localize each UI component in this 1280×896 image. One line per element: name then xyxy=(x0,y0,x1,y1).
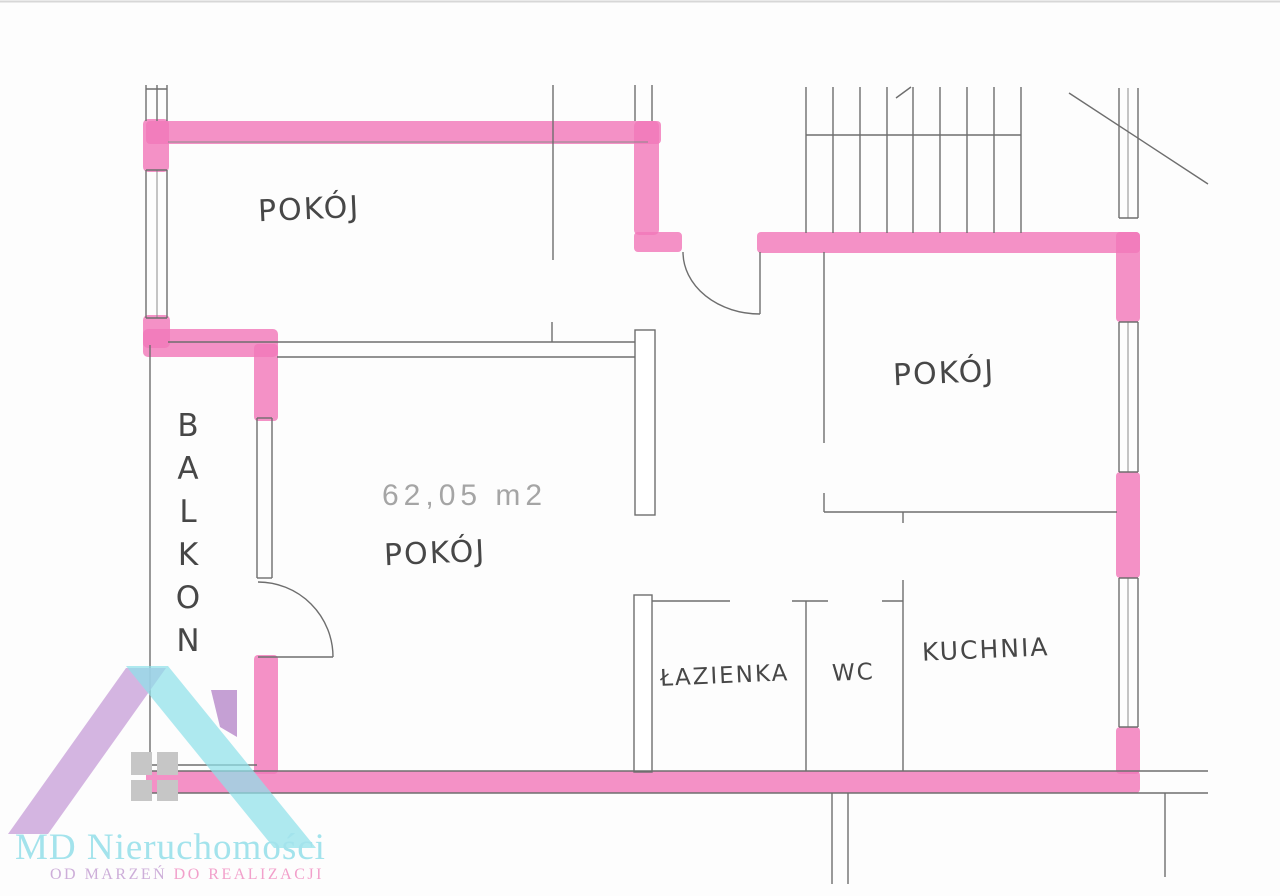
logo-company-name: MD Nieruchomości xyxy=(15,826,326,869)
door-swings xyxy=(258,252,760,657)
area-label: 62,05 m2 xyxy=(382,479,547,513)
logo-tagline: OD MARZEŃ DO REALIZACJI xyxy=(50,866,324,884)
room-label-pokoj-right: POKÓJ xyxy=(892,354,996,393)
scanned-floor-plan: POKÓJ POKÓJ 62,05 m2 POKÓJ BALKON ŁAZIEN… xyxy=(0,0,1280,896)
room-label-kuchnia: KUCHNIA xyxy=(921,632,1050,667)
staircase xyxy=(806,87,1208,233)
logo-tagline-left: OD MARZEŃ xyxy=(50,866,167,883)
room-label-wc: WC xyxy=(831,659,875,687)
logo-tagline-right: DO REALIZACJI xyxy=(174,866,324,883)
room-label-balkon: BALKON xyxy=(170,408,206,666)
room-label-pokoj-living: POKÓJ xyxy=(383,534,487,573)
room-label-pokoj-top-left: POKÓJ xyxy=(257,190,361,229)
